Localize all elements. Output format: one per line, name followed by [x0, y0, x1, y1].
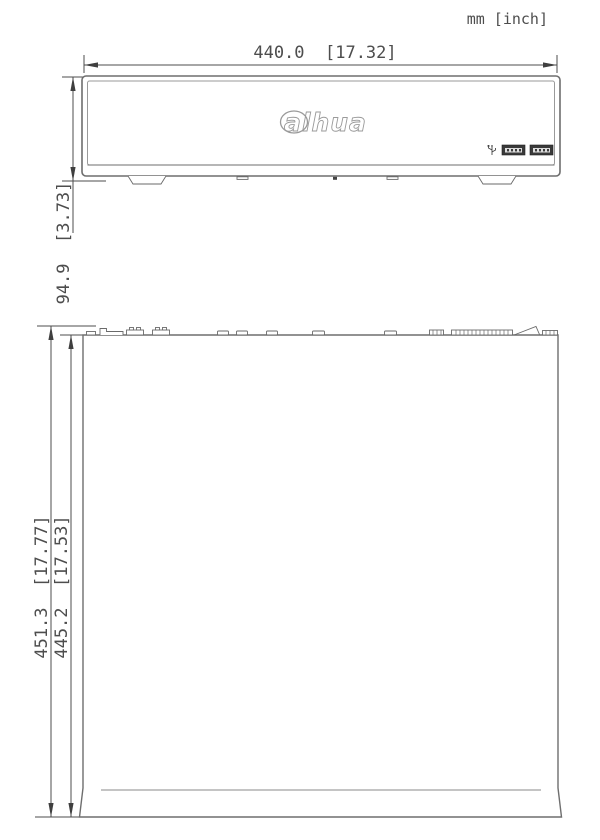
dahua-logo: alhua — [281, 108, 367, 137]
terminal-strip — [452, 330, 513, 335]
rear-bump — [218, 331, 229, 335]
arrowhead-up — [70, 77, 75, 91]
top-view — [35, 326, 562, 817]
arrowhead-up — [68, 335, 73, 349]
arrowhead-up — [48, 326, 53, 340]
usb-port-1 — [502, 145, 525, 155]
rear-bump — [87, 332, 96, 336]
front-width-dimension — [84, 55, 557, 73]
ribbed-connector — [543, 331, 558, 336]
bottom-screw — [333, 177, 337, 180]
latch-lever — [514, 327, 540, 336]
logo-text: alhua — [284, 108, 367, 137]
dimension-drawing: mm [inch] 440.0 [17.32] 94.9 [3.73] 451.… — [0, 0, 600, 840]
drawing-linework: alhua — [0, 0, 600, 840]
right-foot — [478, 176, 516, 184]
bottom-slot — [237, 177, 248, 180]
ribbed-connector — [430, 330, 444, 335]
power-switch — [100, 329, 123, 336]
connector-block — [127, 328, 144, 336]
arrowhead-down — [68, 803, 73, 817]
top-chassis-outline — [80, 335, 562, 817]
arrowhead-left — [84, 62, 98, 67]
front-view: alhua — [62, 55, 560, 233]
bottom-slot — [387, 177, 398, 180]
arrowhead-down — [70, 167, 75, 181]
usb-port-2 — [530, 145, 553, 155]
left-foot — [128, 176, 166, 184]
arrowhead-right — [543, 62, 557, 67]
rear-connectors — [87, 327, 558, 336]
connector-block — [153, 328, 170, 336]
rear-bump — [267, 331, 278, 335]
rear-bump — [237, 331, 248, 335]
top-inner-depth-dimension — [60, 335, 84, 817]
arrowhead-down — [48, 803, 53, 817]
rear-bump — [385, 331, 397, 335]
rear-bump — [313, 331, 325, 335]
